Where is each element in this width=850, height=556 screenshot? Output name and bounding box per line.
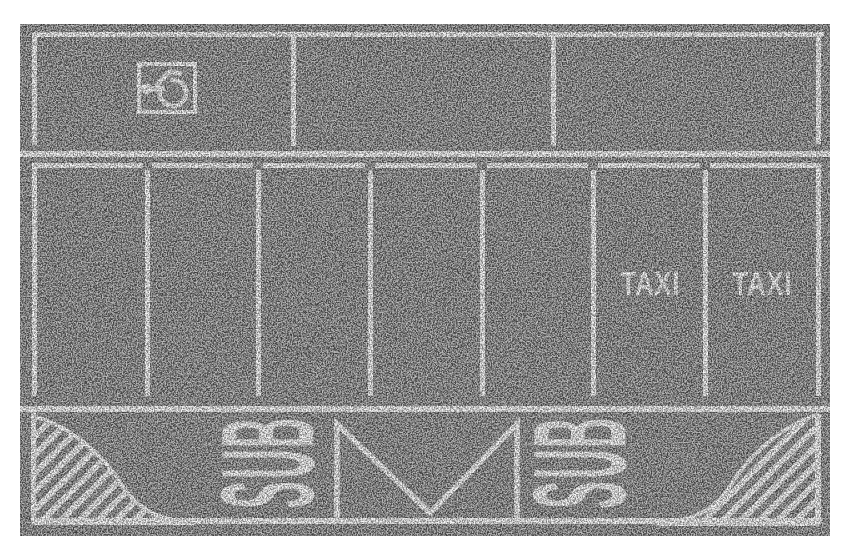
bus-marking-right: B U S [535, 417, 625, 513]
stall-divider [145, 170, 150, 396]
stall-row-top-segment [263, 163, 365, 168]
bus-marking-left: B U S [223, 417, 313, 513]
bus-letter-cell: B [535, 417, 625, 449]
bus-zone-bottom-line [31, 518, 822, 524]
bus-letter-cell: B [223, 417, 313, 449]
bus-letter: S [202, 481, 334, 509]
taxi-text: TAXI [620, 269, 680, 300]
top-row-divider [291, 36, 296, 146]
stall-row-left-line [32, 163, 37, 396]
bus-letter: B [514, 418, 646, 448]
bus-letter: U [514, 449, 646, 479]
bus-letter-cell: U [535, 448, 625, 480]
stall-divider [368, 170, 373, 396]
wheelchair-icon [139, 64, 195, 112]
top-row-back-line [32, 32, 824, 37]
top-row-right-line [816, 32, 821, 144]
stall-row-top-segment [152, 163, 253, 168]
hatch-curve-right [659, 415, 817, 524]
stall-divider [256, 170, 261, 396]
bus-zone-top-line [20, 406, 830, 412]
stall-row-top-segment [32, 163, 143, 168]
bus-letter: U [202, 449, 334, 479]
parking-lot-sheet-photo: TAXI TAXI [0, 0, 850, 556]
bus-letter-cell: U [223, 448, 313, 480]
stall-row-top-segment [375, 163, 477, 168]
bus-stop-zigzag-line [337, 424, 517, 516]
stall-row-top-segment [598, 163, 700, 168]
lane-separator-line [20, 151, 830, 157]
top-row-left-line [32, 32, 37, 145]
stall-row-top-segment [487, 163, 588, 168]
taxi-text: TAXI [732, 269, 792, 300]
asphalt-sheet: TAXI TAXI [20, 24, 830, 536]
bus-letter-cell: S [535, 479, 625, 511]
stall-divider [480, 170, 485, 396]
stall-row-top-segment [710, 163, 821, 168]
bus-zone-left-line [31, 412, 36, 524]
bus-zone-right-line [816, 414, 821, 524]
taxi-stall-label: TAXI [706, 269, 818, 299]
bus-letter: S [514, 481, 646, 509]
bus-letter-cell: S [223, 479, 313, 511]
bus-letter: B [202, 418, 334, 448]
top-row-divider [551, 36, 556, 146]
hatch-curve-left [33, 416, 195, 523]
taxi-stall-label: TAXI [594, 269, 706, 299]
